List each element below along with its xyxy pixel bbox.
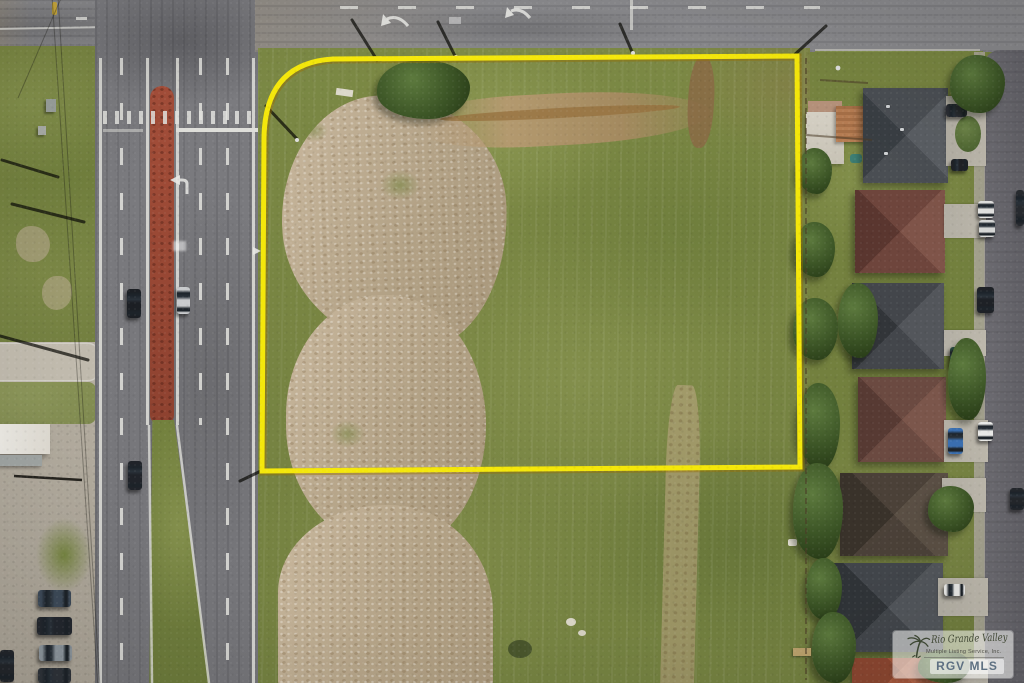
watermark-script-name: Rio Grande Valley <box>931 632 1008 646</box>
watermark-subtitle: Multiple Listing Service, Inc. <box>926 649 1001 655</box>
watermark-rule <box>924 657 1004 658</box>
vignette-overlay <box>0 0 1024 683</box>
aerial-photo: Rio Grande Valley Multiple Listing Servi… <box>0 0 1024 683</box>
mls-watermark: Rio Grande Valley Multiple Listing Servi… <box>893 631 1013 678</box>
watermark-abbreviation: RGV MLS <box>930 659 1004 674</box>
